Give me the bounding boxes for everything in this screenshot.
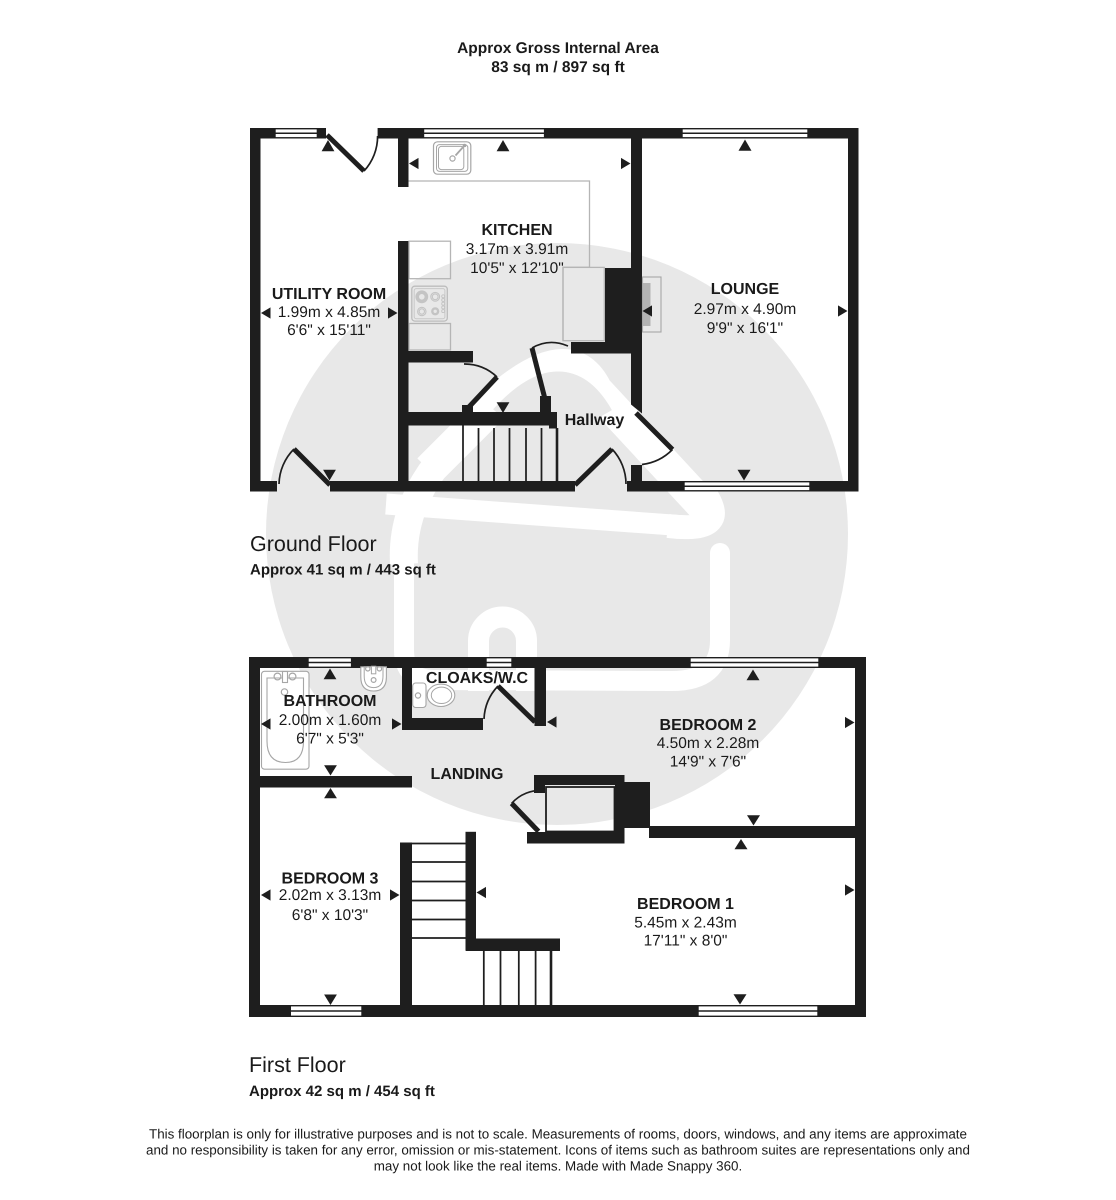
- svg-text:Approx 42 sq m / 454 sq ft: Approx 42 sq m / 454 sq ft: [249, 1083, 435, 1100]
- svg-text:BATHROOM: BATHROOM: [283, 693, 376, 710]
- svg-text:Hallway: Hallway: [565, 412, 625, 429]
- svg-text:BEDROOM 1: BEDROOM 1: [637, 896, 734, 913]
- svg-text:2.00m x 1.60m: 2.00m x 1.60m: [279, 712, 382, 729]
- svg-text:5.45m x 2.43m: 5.45m x 2.43m: [634, 915, 737, 932]
- svg-text:LOUNGE: LOUNGE: [711, 281, 780, 298]
- svg-text:14'9" x 7'6": 14'9" x 7'6": [670, 754, 746, 771]
- svg-text:UTILITY ROOM: UTILITY ROOM: [272, 286, 386, 303]
- svg-text:10'5" x 12'10": 10'5" x 12'10": [470, 260, 564, 277]
- svg-text:Approx 41 sq m / 443 sq ft: Approx 41 sq m / 443 sq ft: [250, 562, 436, 579]
- svg-text:BEDROOM 3: BEDROOM 3: [282, 871, 379, 888]
- svg-text:4.50m x 2.28m: 4.50m x 2.28m: [657, 735, 760, 752]
- svg-text:1.99m x 4.85m: 1.99m x 4.85m: [278, 304, 381, 321]
- svg-text:2.02m x 3.13m: 2.02m x 3.13m: [279, 887, 382, 904]
- svg-text:6'8" x 10'3": 6'8" x 10'3": [292, 907, 368, 924]
- svg-text:6'6" x 15'11": 6'6" x 15'11": [287, 322, 371, 339]
- svg-text:may not look like the real ite: may not look like the real items. Made w…: [374, 1159, 742, 1174]
- svg-text:6'7" x 5'3": 6'7" x 5'3": [296, 731, 364, 748]
- svg-text:KITCHEN: KITCHEN: [481, 222, 552, 239]
- svg-text:CLOAKS/W.C: CLOAKS/W.C: [426, 670, 529, 687]
- svg-text:17'11" x 8'0": 17'11" x 8'0": [644, 933, 728, 950]
- svg-text:and no responsibility is taken: and no responsibility is taken for any e…: [146, 1143, 970, 1158]
- svg-text:BEDROOM 2: BEDROOM 2: [660, 717, 757, 734]
- svg-text:Approx Gross Internal Area: Approx Gross Internal Area: [457, 40, 659, 57]
- svg-text:Ground Floor: Ground Floor: [250, 532, 377, 556]
- svg-text:First Floor: First Floor: [249, 1053, 346, 1077]
- svg-text:9'9" x 16'1": 9'9" x 16'1": [707, 320, 783, 337]
- svg-text:83 sq m / 897 sq ft: 83 sq m / 897 sq ft: [491, 59, 625, 76]
- svg-text:3.17m x 3.91m: 3.17m x 3.91m: [466, 241, 569, 258]
- svg-text:This floorplan is only for ill: This floorplan is only for illustrative …: [149, 1127, 967, 1142]
- svg-text:2.97m x 4.90m: 2.97m x 4.90m: [694, 301, 797, 318]
- svg-text:LANDING: LANDING: [431, 766, 504, 783]
